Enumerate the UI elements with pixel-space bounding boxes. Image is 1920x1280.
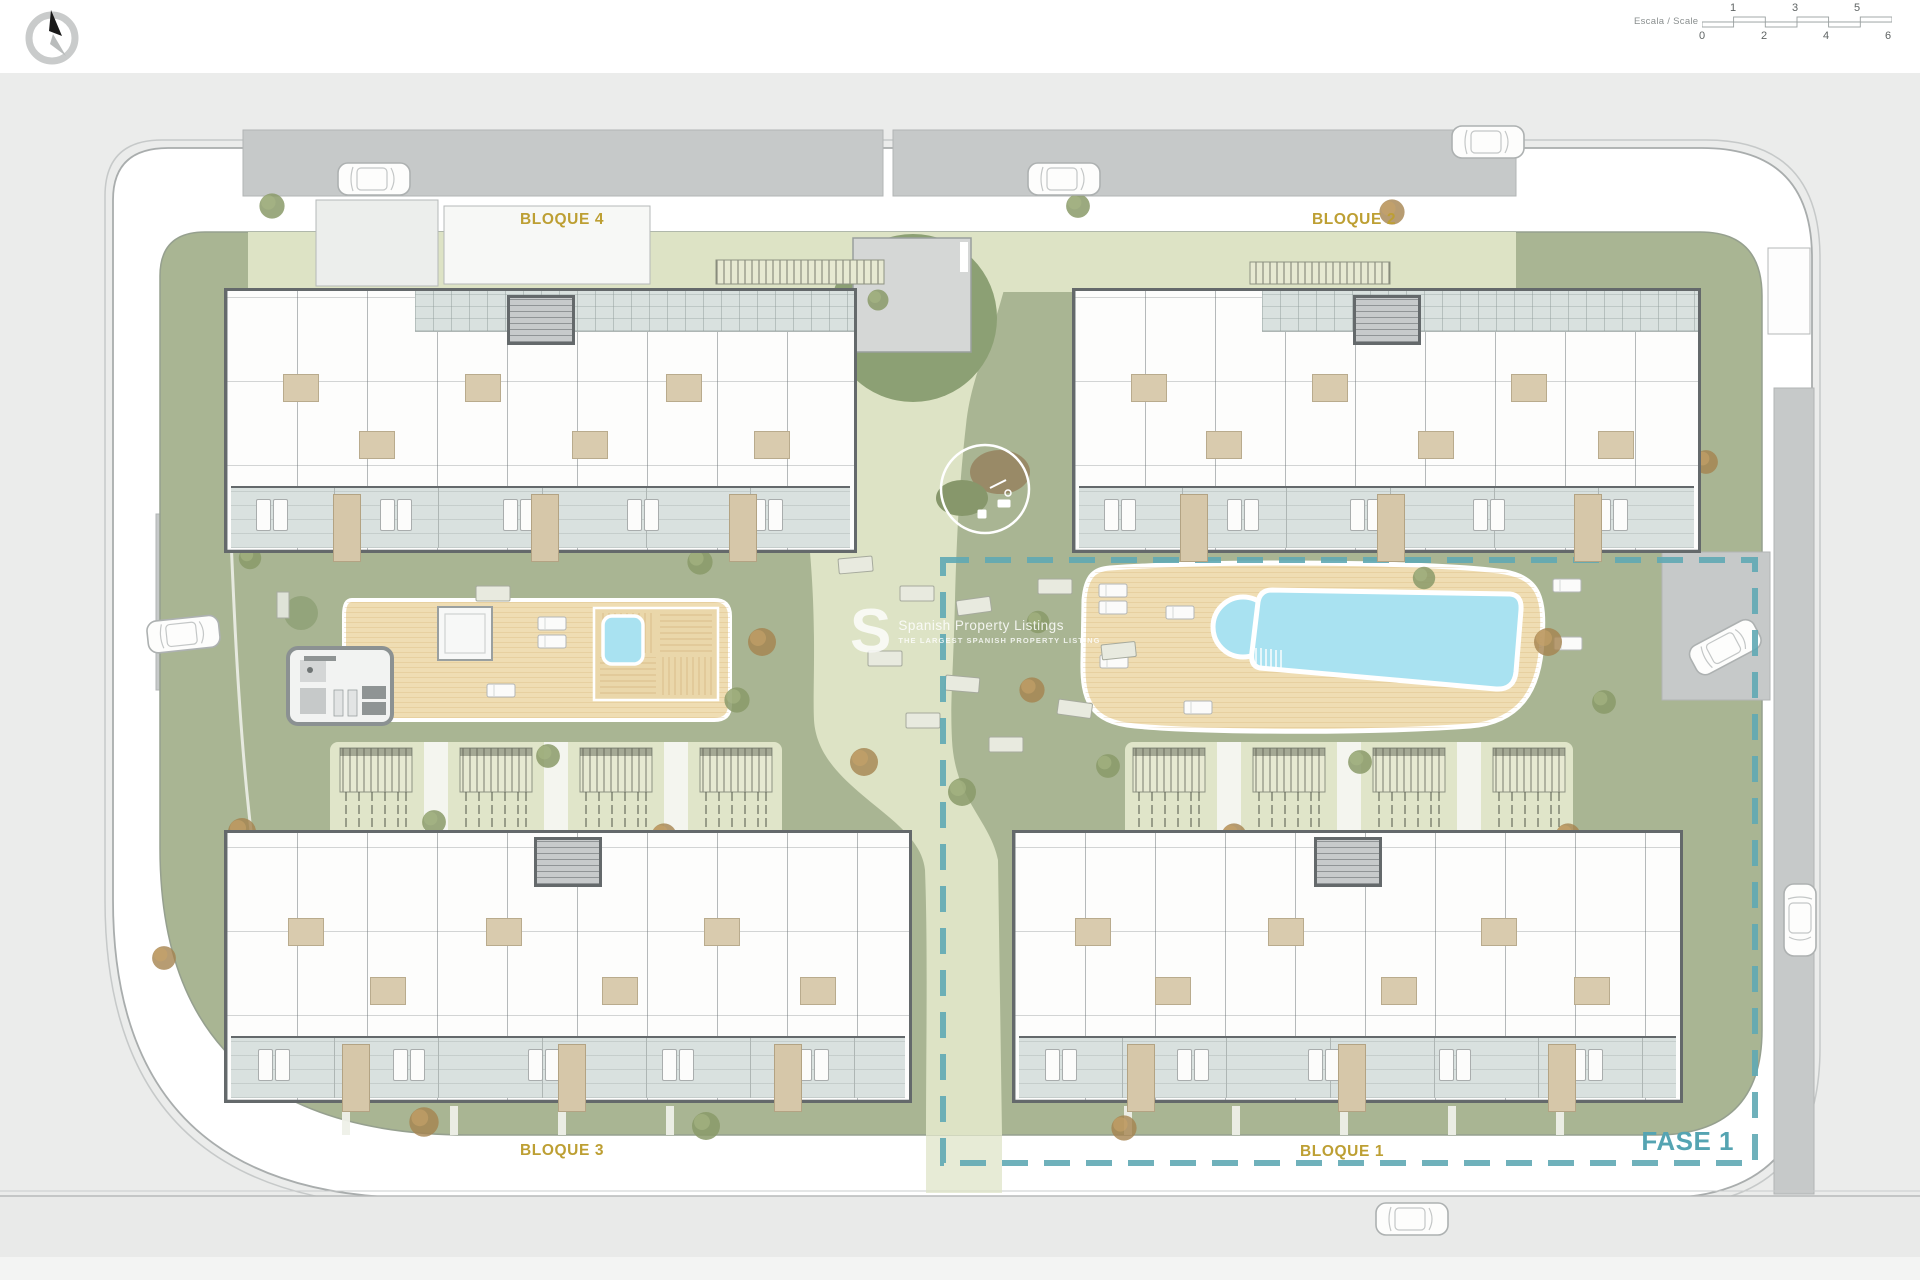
bottom-strip	[0, 1257, 1920, 1280]
car-icon	[1784, 884, 1816, 956]
sun-loungers	[1177, 1049, 1209, 1083]
site-plan-page: BLOQUE 4 BLOQUE 2 BLOQUE 3 BLOQUE 1 FASE…	[0, 0, 1920, 1280]
terrace-entry-stub	[729, 494, 757, 562]
sun-loungers	[393, 1049, 425, 1083]
car-icon	[146, 614, 221, 653]
north-compass-icon	[20, 4, 84, 68]
label-bloque-1: BLOQUE 1	[1300, 1143, 1384, 1161]
stair-core	[534, 837, 602, 887]
label-bloque-4: BLOQUE 4	[520, 211, 604, 229]
sun-loungers	[258, 1049, 290, 1083]
bathroom-patch	[704, 918, 740, 946]
bathroom-patch	[370, 977, 406, 1005]
stair-core	[1314, 837, 1382, 887]
sun-lounger	[1227, 499, 1242, 531]
entry-canopy-a	[316, 200, 438, 286]
terrace-entry-stub	[558, 1044, 586, 1112]
bathroom-patch	[1155, 977, 1191, 1005]
sun-lounger	[627, 499, 642, 531]
sun-lounger	[503, 499, 518, 531]
label-fase-1: FASE 1	[1638, 1126, 1734, 1157]
stair-core	[1353, 295, 1421, 345]
sun-lounger	[275, 1049, 290, 1081]
sun-lounger	[1439, 1049, 1454, 1081]
bathroom-patch	[465, 374, 501, 402]
terrace-entry-stub	[1338, 1044, 1366, 1112]
sun-lounger	[1490, 499, 1505, 531]
terrace-entry-stub	[1180, 494, 1208, 562]
sun-loungers	[1227, 499, 1259, 533]
plunge-pool	[603, 616, 643, 664]
garden-terrace	[1079, 486, 1694, 548]
sun-lounger	[1062, 1049, 1077, 1081]
building-bloque-1	[1012, 830, 1683, 1103]
sun-lounger	[380, 499, 395, 531]
terrace-entry-stub	[1548, 1044, 1576, 1112]
bathroom-patch	[1418, 431, 1454, 459]
scale-tick: 1	[1730, 2, 1736, 14]
left-amenity-area	[277, 592, 730, 724]
sun-lounger	[1308, 1049, 1323, 1081]
gym-building	[288, 648, 392, 724]
bottom-road	[0, 1196, 1920, 1257]
sun-lounger	[273, 499, 288, 531]
bathroom-patch	[283, 374, 319, 402]
top-bar: Escala / Scale 1350246	[0, 0, 1920, 73]
sun-lounger	[1194, 1049, 1209, 1081]
sun-lounger	[1350, 499, 1365, 531]
sun-loungers	[1473, 499, 1505, 533]
terrace-entry-stub	[342, 1044, 370, 1112]
garden-terrace	[1019, 1036, 1676, 1098]
garden-bench	[277, 592, 289, 618]
sun-lounger	[256, 499, 271, 531]
sun-lounger	[644, 499, 659, 531]
bathroom-patch	[486, 918, 522, 946]
bathroom-patch	[1206, 431, 1242, 459]
bathroom-patch	[754, 431, 790, 459]
sun-loungers	[1045, 1049, 1077, 1083]
sun-lounger	[258, 1049, 273, 1081]
terrace-entry-stub	[1377, 494, 1405, 562]
terrace-entry-stub	[333, 494, 361, 562]
car-icon	[1376, 1203, 1448, 1235]
sun-loungers	[380, 499, 412, 533]
bathroom-patch	[1131, 374, 1167, 402]
sun-lounger	[1588, 1049, 1603, 1081]
bathroom-patch	[1268, 918, 1304, 946]
label-bloque-3: BLOQUE 3	[520, 1142, 604, 1160]
garden-terrace	[231, 486, 850, 548]
garden-terrace	[231, 1036, 905, 1098]
sun-loungers	[256, 499, 288, 533]
terrace-entry-stub	[531, 494, 559, 562]
sun-loungers	[627, 499, 659, 533]
scale-tick: 4	[1823, 30, 1829, 42]
sun-lounger	[1473, 499, 1488, 531]
right-road	[1774, 388, 1814, 1194]
entry-trellis-left	[716, 260, 884, 284]
sun-loungers	[797, 1049, 829, 1083]
sun-loungers	[528, 1049, 560, 1083]
car-icon	[338, 163, 410, 195]
terrace-entry-stub	[1574, 494, 1602, 562]
sun-lounger	[410, 1049, 425, 1081]
scale-bar: Escala / Scale 1350246	[1632, 2, 1902, 46]
terrace-entry-stub	[1127, 1044, 1155, 1112]
corner-parking-notch	[1768, 248, 1810, 334]
sun-lounger	[1244, 499, 1259, 531]
bathroom-patch	[602, 977, 638, 1005]
entrance-esplanade	[415, 291, 854, 332]
building-bloque-2	[1072, 288, 1701, 553]
sun-lounger	[393, 1049, 408, 1081]
sun-lounger	[662, 1049, 677, 1081]
scale-tick: 0	[1699, 30, 1705, 42]
scale-tick: 5	[1854, 2, 1860, 14]
building-bloque-4	[224, 288, 857, 553]
bathroom-patch	[1574, 977, 1610, 1005]
sun-lounger	[814, 1049, 829, 1081]
bathroom-patch	[288, 918, 324, 946]
bathroom-patch	[800, 977, 836, 1005]
bathroom-patch	[359, 431, 395, 459]
sun-loungers	[662, 1049, 694, 1083]
deck-pavilion	[438, 607, 492, 660]
sun-lounger	[1045, 1049, 1060, 1081]
bathroom-patch	[1511, 374, 1547, 402]
terrace-entry-stub	[774, 1044, 802, 1112]
bathroom-patch	[1598, 431, 1634, 459]
scale-tick: 6	[1885, 30, 1891, 42]
sun-lounger	[1456, 1049, 1471, 1081]
sun-lounger	[768, 499, 783, 531]
bathroom-patch	[1381, 977, 1417, 1005]
pool-area	[1083, 563, 1582, 731]
sun-loungers	[1439, 1049, 1471, 1083]
sun-loungers	[1308, 1049, 1340, 1083]
sun-loungers	[1104, 499, 1136, 533]
sun-lounger	[397, 499, 412, 531]
sun-lounger	[1121, 499, 1136, 531]
entrance-esplanade	[1262, 291, 1698, 332]
sun-lounger	[528, 1049, 543, 1081]
entry-trellis-right	[1250, 262, 1390, 284]
bathroom-patch	[572, 431, 608, 459]
car-icon	[1028, 163, 1100, 195]
building-bloque-3	[224, 830, 912, 1103]
car-icon	[1452, 126, 1524, 158]
label-bloque-2: BLOQUE 2	[1312, 211, 1396, 229]
bathroom-patch	[666, 374, 702, 402]
bathroom-patch	[1481, 918, 1517, 946]
scale-bar-graphic	[1702, 15, 1892, 29]
scale-tick: 2	[1761, 30, 1767, 42]
sun-lounger	[1613, 499, 1628, 531]
scale-bar-label: Escala / Scale	[1634, 16, 1698, 27]
top-road-right	[893, 130, 1516, 196]
sun-lounger	[679, 1049, 694, 1081]
pavilion-door	[960, 242, 968, 272]
stair-core	[507, 295, 575, 345]
sun-lounger	[1177, 1049, 1192, 1081]
sun-lounger	[1104, 499, 1119, 531]
scale-tick: 3	[1792, 2, 1798, 14]
bathroom-patch	[1312, 374, 1348, 402]
bathroom-patch	[1075, 918, 1111, 946]
